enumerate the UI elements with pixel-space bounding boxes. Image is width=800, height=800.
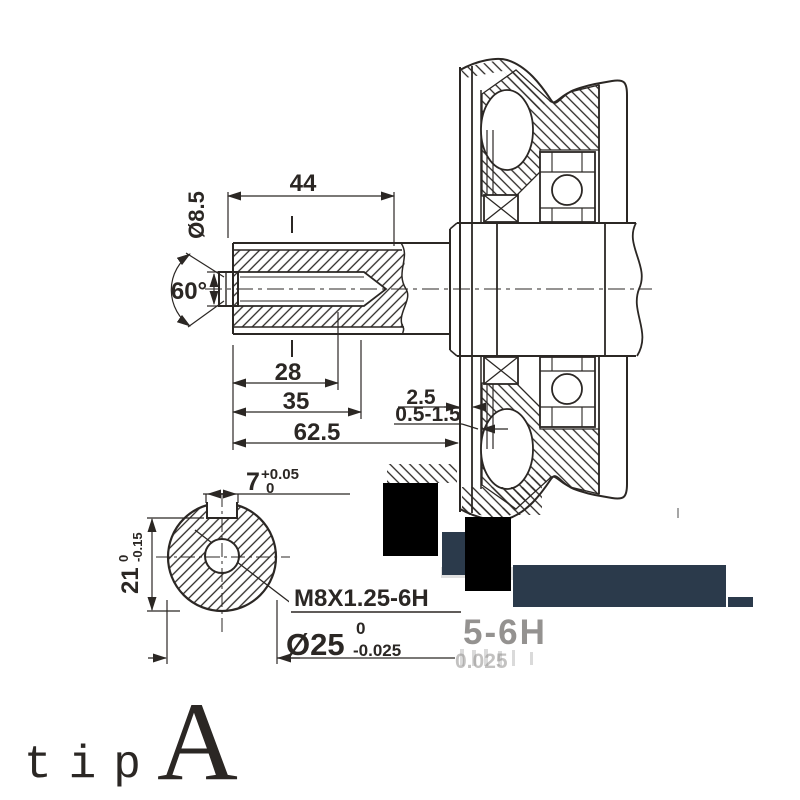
dim-25-label: Ø25 [286, 627, 345, 662]
ball-bearing-bottom [540, 357, 595, 427]
dim-7-tol-lower: 0 [266, 480, 274, 497]
engineering-drawing-page: 44 Ø8.5 60° 28 35 62.5 2.5 0.5-1.5 7 +0.… [0, 0, 800, 800]
crankshaft-drawing: 44 Ø8.5 60° 28 35 62.5 2.5 0.5-1.5 7 +0.… [0, 0, 800, 800]
dim-25-tol-lower: -0.025 [353, 641, 401, 660]
dim-21-label: 21 [117, 567, 144, 594]
dim-21-group: 21 0 -0.15 [116, 532, 145, 594]
case-foot-hatch [462, 487, 542, 515]
dim-35-label: 35 [283, 388, 310, 415]
bearing-ball [552, 374, 582, 404]
redaction-box-black-1 [383, 483, 438, 556]
dim-0-5-1-5-label: 0.5-1.5 [395, 403, 461, 426]
ball-bearing-top [540, 152, 595, 222]
ghost-text-1: 5-6H [463, 613, 547, 652]
redaction-box-navy-1 [442, 532, 465, 575]
redaction-box-navy-3 [728, 597, 753, 607]
dim-44-label: 44 [290, 170, 317, 197]
mount-surface-hatch [387, 464, 457, 483]
caption: tip A [24, 680, 238, 800]
dim-25-tol-upper: 0 [356, 619, 365, 638]
dim-7-label: 7 [246, 468, 260, 496]
dim-21-tol-lower: -0.15 [130, 532, 145, 562]
caption-prefix: tip [24, 739, 158, 791]
redaction-box-black-2 [465, 517, 511, 591]
side-view-shaft-section [205, 216, 652, 357]
ghost-artifacts: 5-6H 0.025 [455, 613, 547, 673]
redaction-box-navy-2 [513, 565, 726, 607]
dim-21-tol-upper: 0 [116, 555, 131, 562]
thread-spec-label: M8X1.25-6H [294, 585, 429, 612]
bearing-ball [552, 175, 582, 205]
oil-seal-bottom [484, 357, 518, 384]
dim-62-5-label: 62.5 [294, 419, 341, 446]
dim-angle-60-label: 60° [171, 278, 207, 305]
dim-diameter-8-5-label: Ø8.5 [184, 191, 209, 239]
caption-letter: A [157, 680, 238, 800]
dim-28-label: 28 [275, 359, 302, 386]
oil-seal-top [484, 195, 518, 222]
